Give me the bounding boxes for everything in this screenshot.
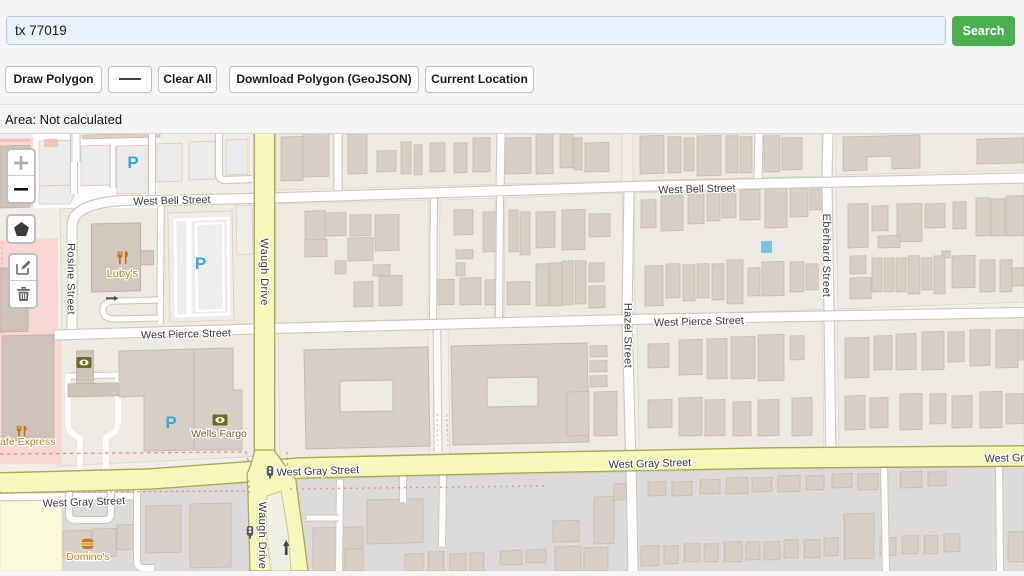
svg-text:Waugh Drive: Waugh Drive	[258, 238, 270, 306]
svg-text:West Gray Street: West Gray Street	[608, 457, 691, 471]
svg-text:P: P	[195, 254, 206, 273]
svg-text:West Gray Street: West Gray Street	[984, 451, 1024, 465]
svg-text:West Bell Street: West Bell Street	[658, 182, 736, 196]
svg-text:Rosine Street: Rosine Street	[65, 243, 77, 315]
svg-text:P: P	[165, 413, 176, 432]
svg-text:Eberhard Street: Eberhard Street	[820, 214, 832, 298]
svg-text:West Pierce Street: West Pierce Street	[141, 327, 231, 341]
svg-text:Luby's: Luby's	[107, 268, 139, 281]
svg-text:Waugh Drive: Waugh Drive	[256, 502, 268, 570]
svg-text:Wells Fargo: Wells Fargo	[191, 428, 247, 440]
svg-text:Domino's: Domino's	[66, 551, 109, 563]
svg-text:West Pierce Street: West Pierce Street	[654, 315, 744, 329]
svg-text:P: P	[127, 153, 138, 172]
svg-text:Hazel Street: Hazel Street	[622, 303, 634, 368]
svg-text:West Bell Street: West Bell Street	[133, 194, 211, 208]
svg-text:Cafe Express: Cafe Express	[0, 436, 56, 448]
